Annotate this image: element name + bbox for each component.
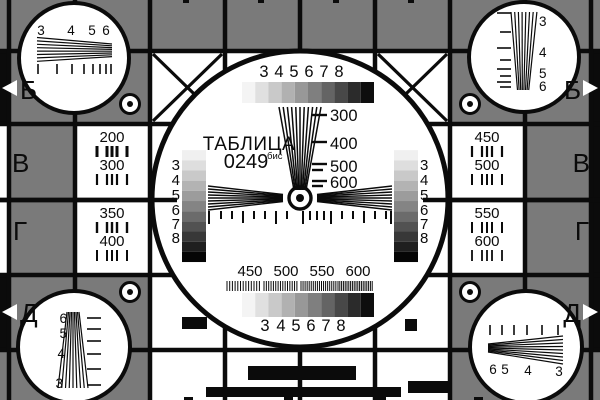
bottom-grayscale-step: [361, 293, 374, 317]
test-card-canvas: 345678300400500600ТАБЛИЦА0249бис33445566…: [0, 0, 600, 400]
grating-frequency-label: 450: [474, 129, 499, 146]
bottom-reference-bar-3: [408, 381, 450, 393]
corner-wedge-number: 4: [67, 23, 75, 38]
top-grayscale-step: [308, 82, 321, 103]
corner-circle-top-right: [469, 2, 579, 112]
clipped-glyph-fragment-top: [183, 0, 189, 3]
left-grayscale-step: [182, 140, 206, 150]
left-grayscale-step: [182, 252, 206, 262]
reference-square-right: [405, 319, 417, 331]
top-grayscale-step: [268, 82, 281, 103]
corner-wedge-number: 3: [37, 23, 45, 38]
top-grayscale-number: 4: [274, 63, 283, 81]
bottom-grayscale-number: 7: [321, 317, 330, 335]
row-label-right: Б: [564, 75, 581, 105]
clipped-glyph-fragment-top: [408, 0, 414, 3]
left-grayscale-step: [182, 181, 206, 191]
grating-frequency-label: 300: [99, 157, 124, 174]
vertical-wedge-label: 300: [330, 107, 358, 125]
bottom-reference-bar-2: [206, 387, 401, 397]
right-grayscale-step: [394, 232, 418, 242]
bottom-grayscale-step: [308, 293, 321, 317]
bottom-grayscale-step: [295, 293, 308, 317]
right-grayscale-step: [394, 181, 418, 191]
corner-wedge-number: 3: [555, 364, 563, 379]
top-grayscale-number: 3: [259, 63, 268, 81]
right-grayscale-step: [394, 252, 418, 262]
tit-0249-test-card: 345678300400500600ТАБЛИЦА0249бис33445566…: [0, 0, 600, 400]
right-grayscale-number: 8: [420, 230, 428, 247]
right-grayscale-step: [394, 211, 418, 221]
vertical-wedge-label: 400: [330, 135, 358, 153]
grating-frequency-label: 600: [474, 233, 499, 250]
top-grayscale-step: [242, 82, 255, 103]
left-grayscale-step: [182, 191, 206, 201]
corner-wedge-number: 4: [524, 363, 532, 378]
corner-wedge-number: 6: [102, 23, 110, 38]
grating-frequency-label: 500: [474, 157, 499, 174]
corner-wedge-number: 3: [539, 14, 547, 29]
corner-wedge-line: [488, 347, 563, 348]
reference-bar-small-left: [182, 317, 207, 329]
bottom-burst-label: 600: [345, 263, 370, 280]
right-grayscale-step: [394, 150, 418, 160]
corner-wedge-number: 6: [539, 79, 547, 94]
row-label-right: Г: [575, 216, 589, 246]
top-grayscale-step: [255, 82, 268, 103]
registration-target-dot: [467, 289, 473, 295]
corner-wedge-number: 6: [489, 362, 497, 377]
corner-wedge-number: 5: [501, 362, 509, 377]
right-grayscale-step: [394, 191, 418, 201]
top-grayscale-number: 6: [304, 63, 313, 81]
clipped-glyph-fragment-top: [333, 0, 339, 3]
top-grayscale-step: [334, 82, 347, 103]
bottom-grayscale-step: [242, 293, 255, 317]
corner-wedge-number: 4: [539, 45, 547, 60]
right-grayscale-step: [394, 140, 418, 150]
row-label-left: Д: [20, 298, 38, 328]
left-grayscale-step: [182, 221, 206, 231]
right-grayscale-step: [394, 221, 418, 231]
grating-frequency-label: 350: [99, 205, 124, 222]
registration-target-dot: [467, 101, 473, 107]
bottom-burst-label: 500: [273, 263, 298, 280]
registration-target-dot: [127, 289, 133, 295]
bottom-grayscale-number: 4: [276, 317, 285, 335]
registration-target-dot: [127, 101, 133, 107]
left-grayscale-step: [182, 160, 206, 170]
right-grayscale-step: [394, 242, 418, 252]
grating-frequency-label: 400: [99, 233, 124, 250]
bottom-burst-label: 550: [309, 263, 334, 280]
vertical-wedge-label: 600: [330, 174, 358, 192]
right-grayscale-step: [394, 160, 418, 170]
top-grayscale-step: [282, 82, 295, 103]
row-label-left: В: [12, 148, 29, 178]
card-number-superscript: бис: [267, 151, 283, 162]
right-grayscale-step: [394, 171, 418, 181]
top-grayscale-step: [361, 82, 374, 103]
clipped-glyph-fragment-top: [258, 0, 264, 3]
left-grayscale-number: 8: [172, 230, 180, 247]
center-bullseye-dot: [296, 194, 304, 202]
top-grayscale-step: [348, 82, 361, 103]
top-grayscale-step: [295, 82, 308, 103]
bottom-grayscale-number: 5: [291, 317, 300, 335]
bottom-grayscale-step: [321, 293, 334, 317]
bottom-grayscale-step: [268, 293, 281, 317]
bottom-reference-bar-1: [248, 366, 356, 380]
left-grayscale-step: [182, 201, 206, 211]
grating-frequency-label: 200: [99, 129, 124, 146]
bottom-grayscale-step: [348, 293, 361, 317]
row-label-right: Д: [563, 298, 581, 328]
row-label-left: Б: [20, 75, 37, 105]
top-grayscale-number: 8: [334, 63, 343, 81]
card-number: 0249: [224, 151, 269, 173]
row-label-right: В: [573, 148, 590, 178]
left-grayscale-step: [182, 150, 206, 160]
right-grayscale-step: [394, 201, 418, 211]
top-grayscale-number: 7: [319, 63, 328, 81]
left-grayscale-step: [182, 211, 206, 221]
top-grayscale-step: [321, 82, 334, 103]
bottom-grayscale-number: 8: [336, 317, 345, 335]
bottom-grayscale-step: [282, 293, 295, 317]
bottom-grayscale-number: 6: [306, 317, 315, 335]
left-grayscale-step: [182, 242, 206, 252]
bottom-grayscale-number: 3: [260, 317, 269, 335]
left-grayscale-step: [182, 171, 206, 181]
bottom-grayscale-step: [334, 293, 347, 317]
bottom-burst-label: 450: [237, 263, 262, 280]
corner-wedge-number: 5: [88, 23, 96, 38]
bottom-grayscale-step: [255, 293, 268, 317]
row-label-left: Г: [13, 216, 27, 246]
top-grayscale-number: 5: [289, 63, 298, 81]
left-grayscale-step: [182, 232, 206, 242]
grating-frequency-label: 550: [474, 205, 499, 222]
